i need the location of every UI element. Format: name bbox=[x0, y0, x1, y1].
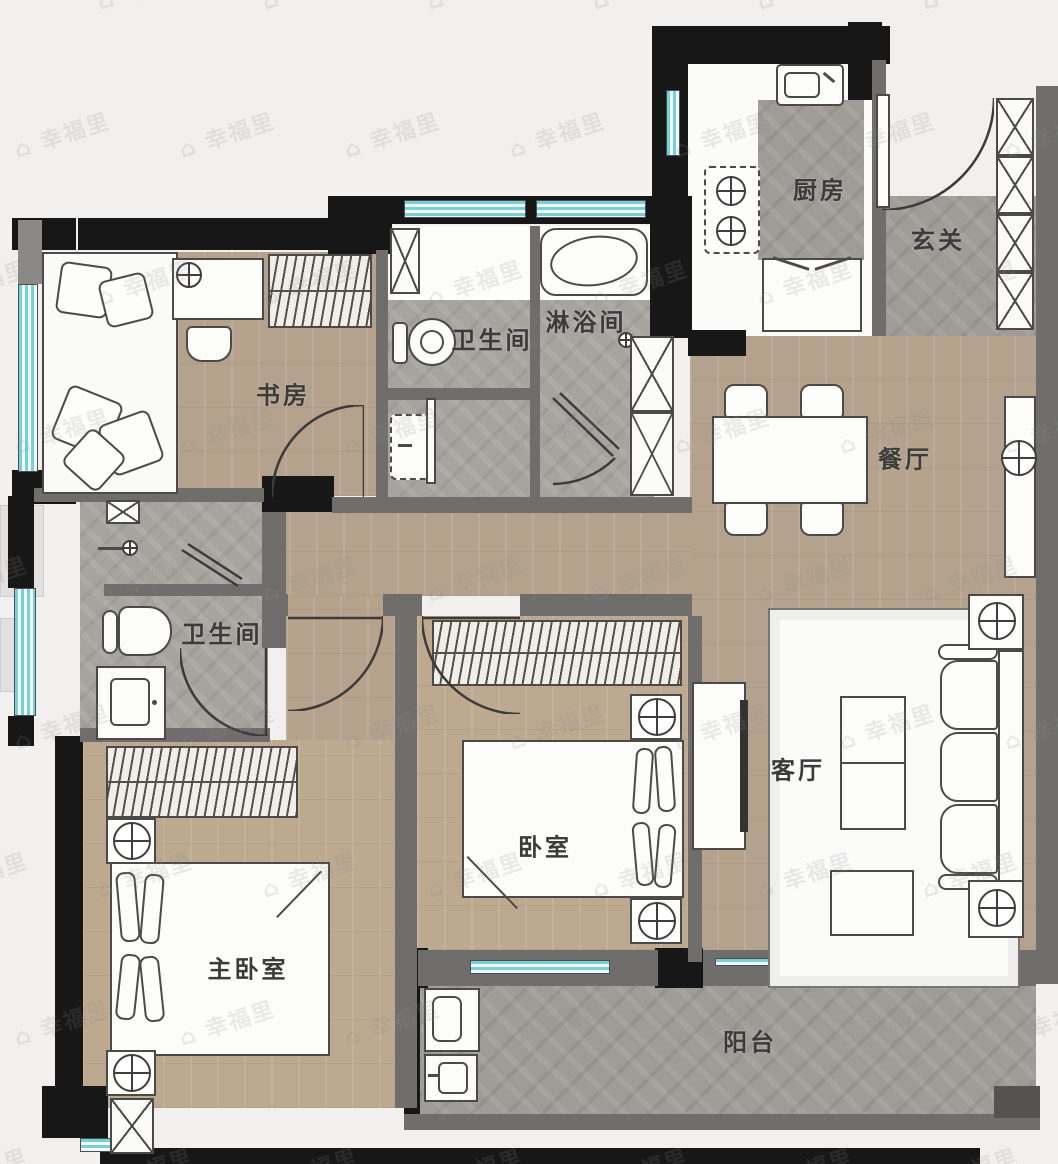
room-label-bedroom: 卧室 bbox=[518, 828, 572, 863]
watermark: ⌂ 幸福里 bbox=[752, 0, 856, 17]
toilet-bowl-detail bbox=[420, 330, 444, 354]
watermark: ⌂ 幸福里 bbox=[0, 0, 32, 17]
wall-segment bbox=[388, 388, 530, 400]
wall-segment bbox=[1036, 86, 1058, 984]
plant-symbol bbox=[1001, 440, 1037, 476]
plant-symbol bbox=[978, 889, 1016, 927]
dining-chair bbox=[724, 502, 768, 536]
shoe-cabinet bbox=[996, 156, 1034, 214]
wall-segment bbox=[262, 512, 286, 648]
watermark: ⌂ 幸福里 bbox=[504, 103, 608, 164]
wall-segment bbox=[328, 196, 392, 254]
wall-segment bbox=[42, 1086, 108, 1138]
floor-hall bbox=[262, 510, 692, 596]
watermark: ⌂ 幸福里 bbox=[92, 0, 196, 17]
shoe-cabinet bbox=[996, 214, 1034, 272]
watermark: ⌂ 幸福里 bbox=[917, 0, 1021, 17]
dining-table bbox=[712, 416, 868, 504]
wall-segment bbox=[18, 220, 42, 284]
room-label-dining: 餐厅 bbox=[878, 440, 932, 475]
lamp-symbol bbox=[113, 822, 151, 860]
door-arc-entry bbox=[882, 98, 994, 210]
shower-glass bbox=[176, 542, 248, 596]
sofa-seat bbox=[940, 732, 998, 802]
wall-segment bbox=[530, 226, 540, 502]
tv-panel bbox=[740, 700, 748, 832]
room-label-bath-top: 卫生间 bbox=[452, 321, 533, 356]
balcony-faucet bbox=[428, 1074, 440, 1077]
floor-plan: 书房 卫生间 淋浴间 厨房 玄关 餐厅 bbox=[0, 0, 1058, 1164]
toilet-tank bbox=[102, 610, 118, 654]
door-leaf-bath-top bbox=[426, 398, 436, 484]
wardrobe-master bbox=[106, 746, 298, 818]
wall-segment bbox=[55, 736, 83, 1100]
media-cabinet bbox=[830, 870, 914, 936]
wall-segment bbox=[78, 218, 336, 250]
desk-lamp-symbol bbox=[176, 262, 202, 288]
window-bath-bottom bbox=[14, 588, 36, 716]
room-label-kitchen: 厨房 bbox=[793, 171, 847, 206]
watermark: ⌂ 幸福里 bbox=[9, 103, 113, 164]
door-arc-bath-bottom bbox=[180, 648, 268, 736]
window-bath-top bbox=[404, 200, 526, 218]
room-label-study: 书房 bbox=[256, 376, 310, 411]
wall-segment bbox=[100, 1148, 980, 1164]
wall-segment bbox=[650, 196, 692, 338]
wall-segment bbox=[383, 594, 422, 616]
washer-door bbox=[432, 996, 462, 1042]
room-label-living: 客厅 bbox=[771, 751, 825, 786]
watermark: ⌂ 幸福里 bbox=[0, 843, 32, 904]
vanity-faucet bbox=[152, 700, 157, 705]
sofa-seat bbox=[940, 660, 998, 730]
stove-burner bbox=[716, 176, 746, 206]
vanity-sink bbox=[110, 678, 150, 726]
door-arc-master bbox=[288, 616, 383, 711]
room-label-master: 主卧室 bbox=[208, 950, 289, 985]
dining-chair bbox=[724, 384, 768, 418]
wall-segment bbox=[8, 496, 34, 588]
dining-chair bbox=[800, 384, 844, 418]
shower-pipe bbox=[98, 547, 122, 550]
hall-cabinet bbox=[630, 336, 674, 412]
lamp-symbol bbox=[638, 902, 676, 940]
wall-segment bbox=[8, 716, 34, 746]
window-study bbox=[18, 284, 38, 472]
watermark: ⌂ 幸福里 bbox=[174, 103, 278, 164]
lamp-symbol bbox=[638, 698, 676, 736]
room-label-balcony: 阳台 bbox=[723, 1023, 777, 1058]
refrigerator bbox=[762, 258, 862, 332]
window-bedroom bbox=[470, 960, 610, 974]
toilet-bath-bottom bbox=[118, 606, 172, 656]
room-label-foyer: 玄关 bbox=[911, 221, 965, 256]
door-arc-bedroom bbox=[422, 616, 520, 714]
cabinet-bath-bottom bbox=[106, 500, 140, 524]
appliance-arrow bbox=[398, 444, 412, 447]
door-arc-study bbox=[272, 405, 364, 497]
coffee-table bbox=[840, 696, 906, 830]
lamp-symbol bbox=[113, 1054, 151, 1092]
cabinet-master bbox=[110, 1098, 154, 1154]
room-label-shower: 淋浴间 bbox=[546, 303, 627, 338]
kitchen-sink-basin bbox=[784, 72, 820, 98]
wall-segment bbox=[688, 330, 746, 356]
toilet-tank bbox=[392, 322, 408, 364]
wall-segment bbox=[520, 594, 692, 616]
watermark: ⌂ 幸福里 bbox=[257, 0, 361, 17]
cabinet-bath-top bbox=[390, 228, 420, 294]
watermark: ⌂ 幸福里 bbox=[0, 1139, 32, 1164]
sofa-seat bbox=[940, 804, 998, 874]
sideboard bbox=[1004, 396, 1036, 578]
room-label-bath-bottom: 卫生间 bbox=[182, 615, 263, 650]
plant-symbol bbox=[978, 602, 1016, 640]
wall-segment bbox=[395, 962, 417, 1108]
stove-burner bbox=[716, 216, 746, 246]
shoe-cabinet bbox=[996, 272, 1034, 330]
sofa-back bbox=[998, 650, 1024, 882]
balcony-sink-basin bbox=[438, 1062, 468, 1094]
wall-segment bbox=[332, 497, 692, 513]
wall-segment bbox=[994, 1086, 1040, 1118]
hall-cabinet bbox=[630, 412, 674, 496]
watermark: ⌂ 幸福里 bbox=[422, 0, 526, 17]
window-shower bbox=[536, 200, 646, 218]
wall-segment bbox=[404, 1114, 1040, 1130]
shoe-cabinet bbox=[996, 98, 1034, 156]
watermark: ⌂ 幸福里 bbox=[587, 0, 691, 17]
wall-segment bbox=[376, 250, 388, 502]
watermark: ⌂ 幸福里 bbox=[339, 103, 443, 164]
window-kitchen bbox=[666, 90, 680, 156]
desk-chair bbox=[186, 326, 232, 362]
wall-segment bbox=[395, 616, 417, 962]
dining-chair bbox=[800, 502, 844, 536]
tv-console bbox=[692, 682, 746, 850]
shower-valve-symbol bbox=[122, 540, 138, 556]
wardrobe-study bbox=[268, 254, 372, 328]
